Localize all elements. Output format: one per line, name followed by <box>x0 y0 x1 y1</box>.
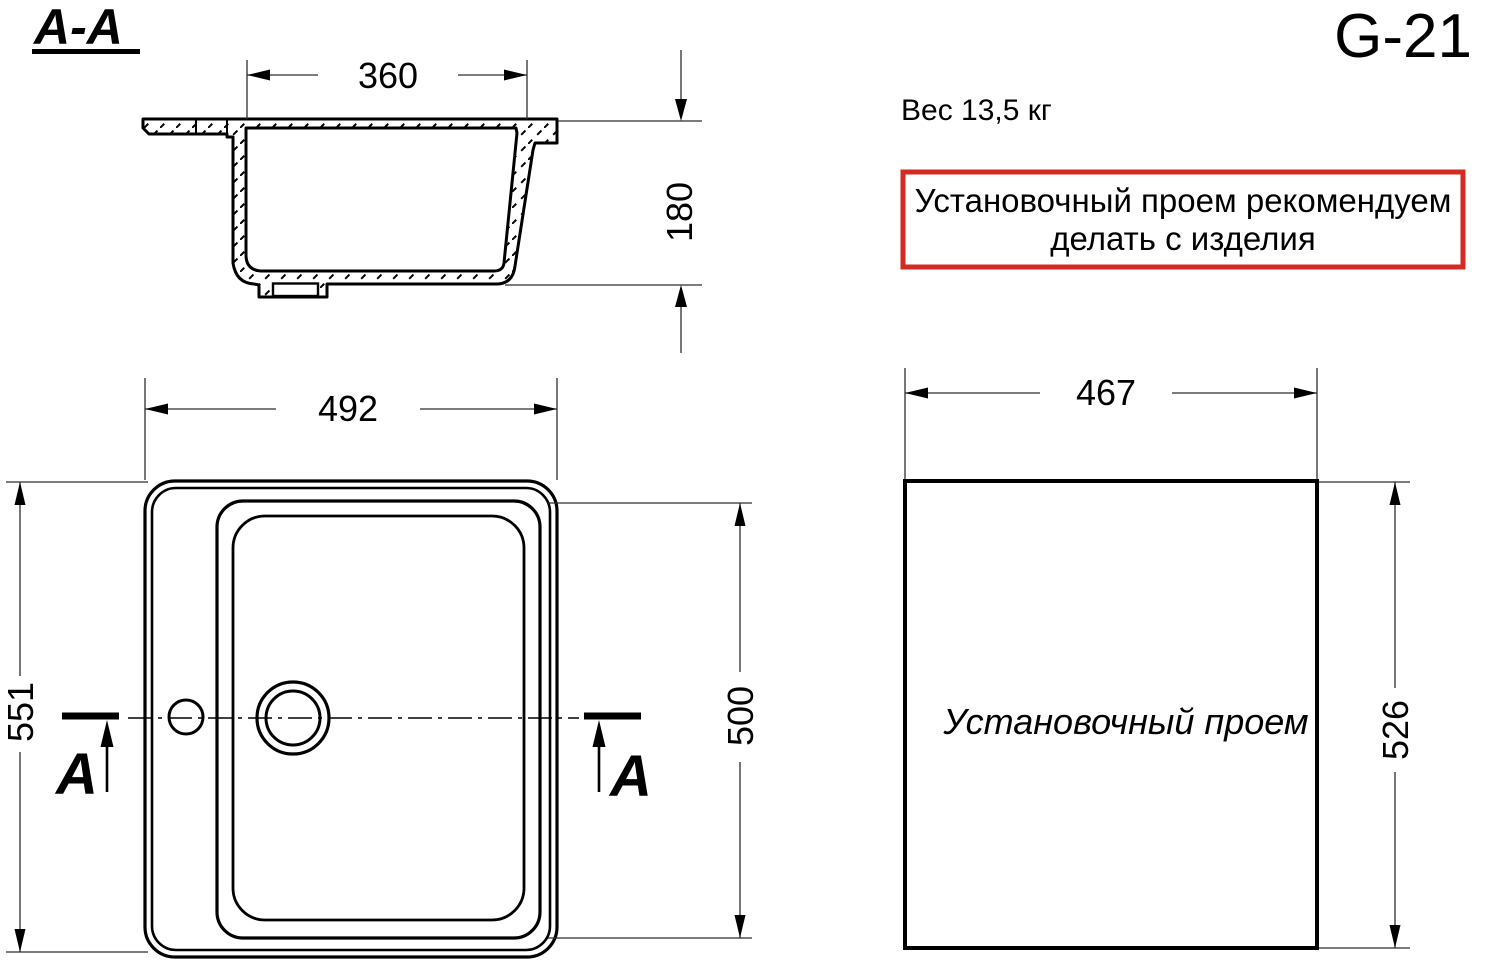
arrowhead-down <box>675 99 687 121</box>
arrowhead-left <box>247 70 270 81</box>
arrowhead-right <box>504 70 527 81</box>
dim-cutout-length-526: 526 <box>1319 482 1416 948</box>
cut-letter: A <box>54 742 98 807</box>
cut-arrow-head <box>593 720 606 747</box>
arrowhead-up <box>15 482 26 505</box>
note-box: Установочный проем рекомендуем делать с … <box>903 172 1463 267</box>
section-cut-marker-left: A <box>54 716 119 807</box>
arrowhead-up <box>735 503 746 526</box>
faucet-hole <box>169 700 203 734</box>
section-label-underline <box>32 49 140 54</box>
drain-boss <box>273 284 318 297</box>
dim-value: 360 <box>358 55 418 96</box>
arrowhead-down <box>735 915 746 938</box>
dim-value: 551 <box>0 682 41 742</box>
note-text-line1: Установочный проем рекомендуем <box>915 182 1452 219</box>
cut-letter: A <box>608 744 652 809</box>
arrowhead-up <box>1390 482 1401 505</box>
cutout-label: Установочный проем <box>942 701 1308 742</box>
arrowhead-up <box>675 285 687 307</box>
dim-value: 467 <box>1076 372 1136 413</box>
section-label: A-A <box>32 0 123 55</box>
cutout-view: Установочный проем 467 526 <box>905 368 1416 948</box>
dim-cutout-width-467: 467 <box>905 368 1317 479</box>
dim-value: 180 <box>659 182 700 242</box>
top-view: A A 492 551 <box>0 378 761 957</box>
weight-label: Вес 13,5 кг <box>901 94 1052 127</box>
dim-value: 492 <box>318 388 378 429</box>
dim-bowl-depth-180: 180 <box>505 50 702 353</box>
technical-drawing: A-A 360 180 <box>0 0 1491 962</box>
arrowhead-down <box>15 929 26 952</box>
dim-sink-width-492: 492 <box>145 378 557 480</box>
section-cut-marker-right: A <box>584 716 652 809</box>
arrowhead-down <box>1390 925 1401 948</box>
dim-value: 526 <box>1375 700 1416 760</box>
dim-bowl-length-500: 500 <box>548 503 761 938</box>
cut-arrow-head <box>101 720 114 747</box>
dim-bowl-opening-360: 360 <box>247 55 527 119</box>
sink-outline-inner <box>152 488 550 950</box>
arrowhead-right <box>534 404 557 415</box>
section-view: A-A 360 180 <box>32 0 702 353</box>
arrowhead-right <box>1294 388 1317 399</box>
drawing-sheet: A-A 360 180 <box>0 0 1491 962</box>
note-text-line2: делать с изделия <box>1050 220 1315 257</box>
info-panel: G-21 Вес 13,5 кг Установочный проем реко… <box>901 2 1472 267</box>
dim-value: 500 <box>720 686 761 746</box>
arrowhead-left <box>905 388 928 399</box>
sink-outline-outer <box>145 481 557 957</box>
section-profile <box>143 119 557 297</box>
arrowhead-left <box>145 404 168 415</box>
model-title: G-21 <box>1334 2 1472 71</box>
